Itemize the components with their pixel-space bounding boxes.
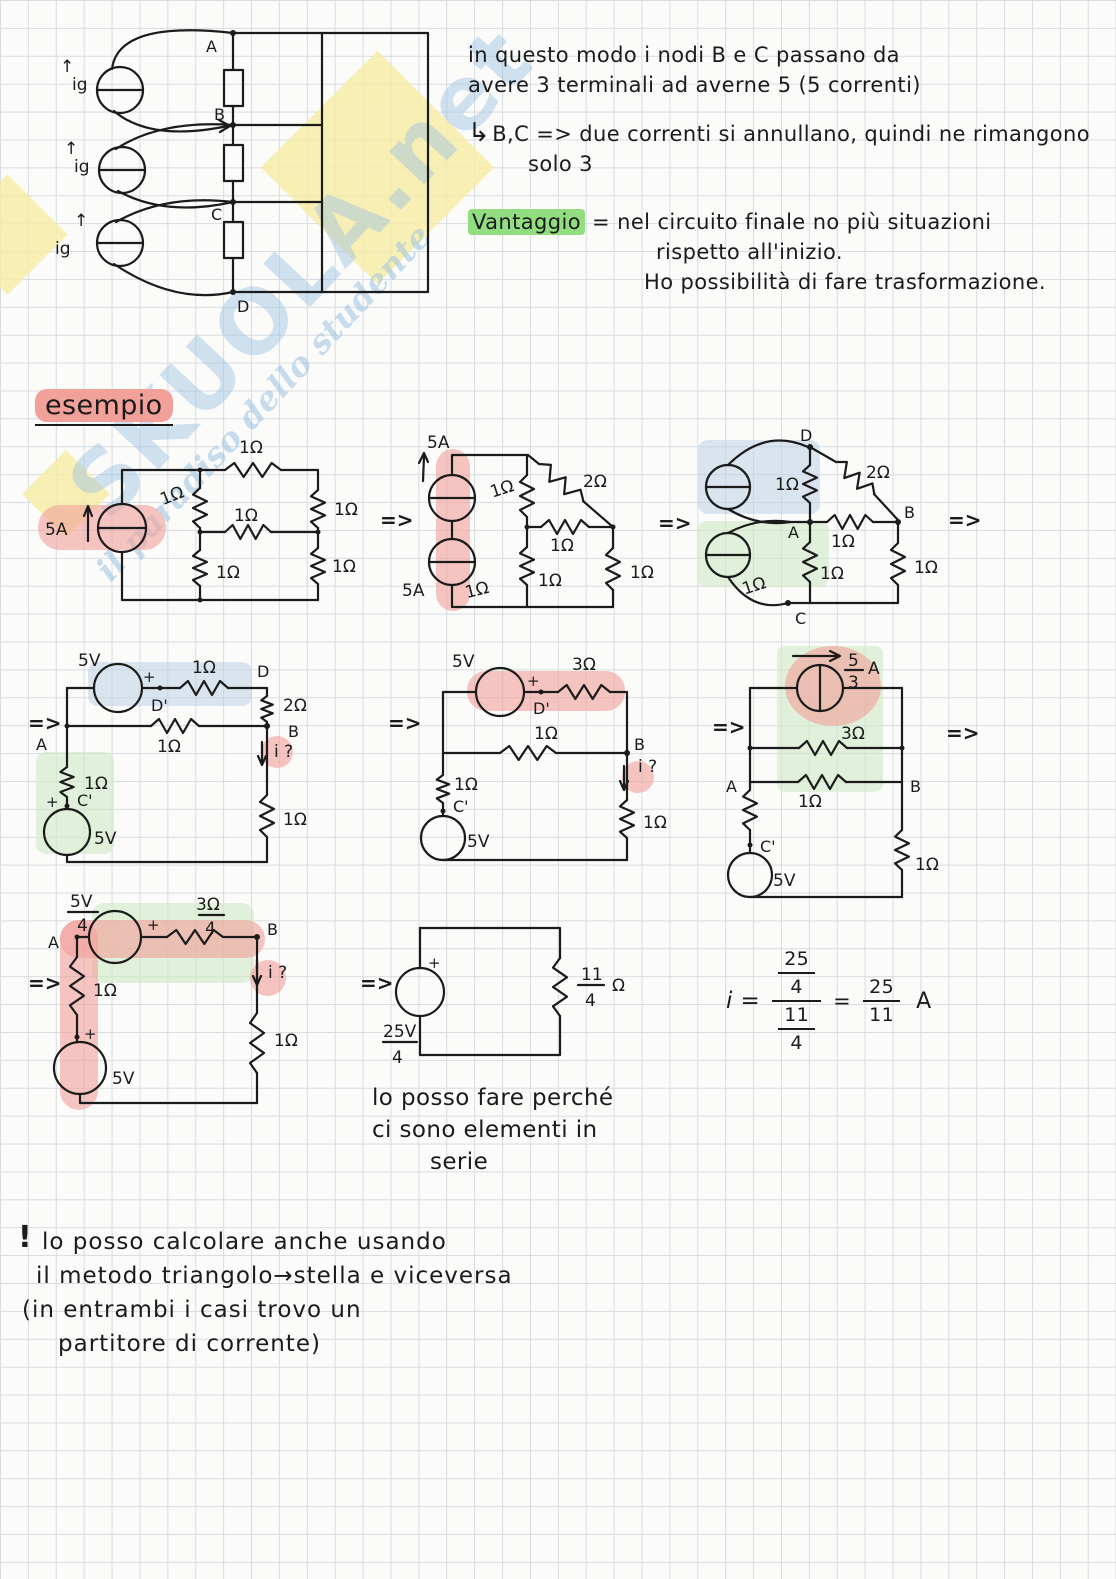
source-label: 5V [773,871,796,891]
resistor-label: 1Ω [332,557,356,577]
circuit-row1-nodes-named: D 1Ω 2Ω A 1Ω B 1Ω 1Ω C 1Ω [697,426,938,628]
current-question: i ? [274,742,293,762]
unit-label: Ω [612,976,625,996]
source-label: 5V [467,832,490,852]
bottom-note: ! lo posso calcolare anche usando il met… [22,1225,513,1361]
resistor-label: 1Ω [234,506,258,526]
resistor-label: 1Ω [915,855,939,875]
implies-arrow: => [388,711,422,735]
resistor-label: 1Ω [775,475,799,495]
notebook-page: SKUOLA.net il paradiso dello studente [0,0,1116,1579]
fraction: 2511 [863,976,900,1026]
node-label: C' [453,797,469,816]
up-arrow-icon: ↑ [64,139,78,159]
fraction-denominator: 4 [77,916,88,936]
circuit-row1-sources-split: 5A 1Ω 2Ω 1Ω 1Ω 1Ω 5A 1Ω [402,433,654,611]
source-label: 5A [402,581,425,601]
resistor-label: 1Ω [274,1031,298,1051]
node-label: B [904,503,915,522]
top-notes: in questo modo i nodi B e C passano da a… [468,40,1100,297]
fraction-denominator: 4 [205,919,216,939]
fraction-numerator: 25 [778,948,815,974]
series-note: lo posso fare perché ci sono elementi in… [372,1082,613,1178]
implies-arrow: => [28,971,62,995]
current-question: i ? [638,757,657,777]
node-label: A [48,933,59,952]
resistor-label: 3Ω [841,724,865,744]
source-label: 5V [94,829,117,849]
branch-arrow-icon: ↳ [468,118,490,148]
resistor-label: 1Ω [157,737,181,757]
fraction-numerator: 11 [581,965,603,985]
resistor-label: 2Ω [583,472,607,492]
fraction-denominator: 4 [392,1048,403,1068]
up-arrow-icon: ↑ [60,57,74,77]
fraction-numerator: 11 [778,1004,815,1030]
note-line: serie [430,1146,613,1178]
node-label: D' [533,699,550,718]
node-label: C [211,205,222,224]
source-label: ig [72,75,88,95]
implies-arrow: => [360,971,394,995]
node-label: A [206,37,217,56]
current-formula: i = 254 114 = 2511 A [726,948,932,1054]
resistor-label: 1Ω [192,658,216,678]
note-line: Ho possibilità di fare trasformazione. [644,267,1100,297]
fraction-denominator: 11 [863,1002,900,1026]
note-line: il metodo triangolo→stella e viceversa [36,1259,513,1293]
implies-arrow: => [712,715,746,739]
source-label: 5A [427,433,450,453]
node-label: D' [151,696,168,715]
vantaggio-note: Vantaggio = nel circuito finale no più s… [468,207,1100,237]
note-line: lo posso fare perché [372,1082,613,1114]
esempio-title: esempio [35,389,173,422]
resistor-label: 1Ω [488,476,517,502]
resistor-label: 1Ω [283,810,307,830]
fraction: 254 [778,948,815,998]
source-label: 5A [45,520,68,540]
node-label: C [795,609,806,628]
resistor-label: 2Ω [283,696,307,716]
node-label: D [257,662,269,681]
source-label: 5V [112,1069,135,1089]
circuit-row2-current-source: 5 3 A 3Ω 1Ω A B C' [726,646,939,897]
resistor-label: 1Ω [550,536,574,556]
fraction-denominator: 3 [848,673,859,693]
note-line: partitore di corrente) [58,1327,513,1361]
fraction-numerator: 25V [383,1022,417,1042]
fraction: 114 [778,1004,815,1054]
circuit-row3-combined-sources: 5V 4 + 3Ω 4 B i ? 1Ω A + 1Ω [48,892,298,1110]
node-label: A [726,777,737,796]
node-label: D [237,297,249,316]
fraction-denominator: 4 [585,991,596,1011]
node-label: B [214,105,225,124]
resistor-label: 1Ω [630,563,654,583]
node-label: A [788,523,799,542]
implies-arrow: => [658,511,692,535]
note-line: in questo modo i nodi B e C passano da [468,40,1100,70]
fraction-numerator: 5 [848,651,859,671]
formula-lhs: i = [726,988,760,1014]
fraction-numerator: 25 [863,976,900,1002]
fraction-numerator: 5V [70,892,93,912]
fraction-numerator: 3Ω [196,895,220,915]
resistor-label: 1Ω [463,578,491,603]
circuit-row2-simplified: 5V + D' 3Ω B 1Ω i ? 1Ω 1Ω C' 5V [421,652,667,860]
resistor-label: 1Ω [643,813,667,833]
note-line: avere 3 terminali ad averne 5 (5 corrent… [468,70,1100,100]
implies-arrow: => [28,711,62,735]
resistor-label: 1Ω [914,558,938,578]
node-label: C' [760,837,776,856]
node-label: D [800,426,812,445]
node-label: B [288,722,299,741]
implies-arrow: => [380,508,414,532]
resistor-label: 1Ω [798,792,822,812]
resistor-label: 1Ω [157,482,187,509]
unit-label: A [916,989,931,1014]
resistor-label: 1Ω [334,500,358,520]
node-label: C' [77,791,93,810]
note-line: solo 3 [528,149,1100,179]
plus-sign: + [46,793,59,811]
formula-main-fraction: 254 114 [772,948,821,1054]
resistor-label: 2Ω [866,463,890,483]
fraction-denominator: 4 [784,1030,809,1054]
plus-sign: + [143,668,156,686]
esempio-heading: esempio [35,390,173,426]
unit-label: A [868,659,880,679]
fig1-three-source-network: A B C D ↑ ig ↑ ig ↑ ig [55,30,428,316]
resistor-label: 1Ω [216,563,240,583]
up-arrow-icon: ↑ [74,211,88,231]
resistor-label: 1Ω [820,564,844,584]
source-label: 5V [78,651,101,671]
resistor-label: 3Ω [572,655,596,675]
resistor-label: 1Ω [831,532,855,552]
resistor-label: 1Ω [239,438,263,458]
node-label: B [267,920,278,939]
source-label: ig [74,157,90,177]
note-line: rispetto all'inizio. [656,237,1100,267]
circuit-row3-final-loop: + 25V 4 11 4 Ω [383,928,625,1068]
implies-arrow: => [948,508,982,532]
node-label: B [910,777,921,796]
node-label: A [36,735,47,754]
resistor-label: 1Ω [93,981,117,1001]
vantaggio-label: Vantaggio [468,209,585,235]
circuit-row2-voltage-sources: 5V + D' 1Ω D 2Ω B i ? 1Ω 1Ω A 1Ω + C' 5V [36,651,307,862]
equals-sign: = [833,989,851,1013]
exclamation-mark: ! [18,1221,33,1255]
source-label: ig [55,239,71,259]
node-label: B [634,735,645,754]
resistor-label: 1Ω [534,724,558,744]
resistor-label: 1Ω [454,775,478,795]
note-line: lo posso calcolare anche usando [42,1225,513,1259]
note-branch: ↳B,C => due correnti si annullano, quind… [468,118,1100,149]
note-line: ci sono elementi in [372,1114,613,1146]
note-line: = nel circuito finale no più situazioni [592,210,991,234]
fraction-denominator: 4 [784,974,809,998]
source-label: 5V [452,652,475,672]
current-question: i ? [268,963,287,983]
note-line: B,C => due correnti si annullano, quindi… [492,122,1090,146]
implies-arrow: => [946,721,980,745]
resistor-label: 1Ω [538,571,562,591]
plus-sign: + [527,672,540,690]
plus-sign: + [428,954,441,972]
plus-sign: + [147,916,160,934]
circuit-row1-original: 5A 1Ω 1Ω 1Ω 1Ω 1Ω 1Ω [38,438,358,603]
note-line: (in entrambi i casi trovo un [22,1293,513,1327]
plus-sign: + [84,1025,97,1043]
